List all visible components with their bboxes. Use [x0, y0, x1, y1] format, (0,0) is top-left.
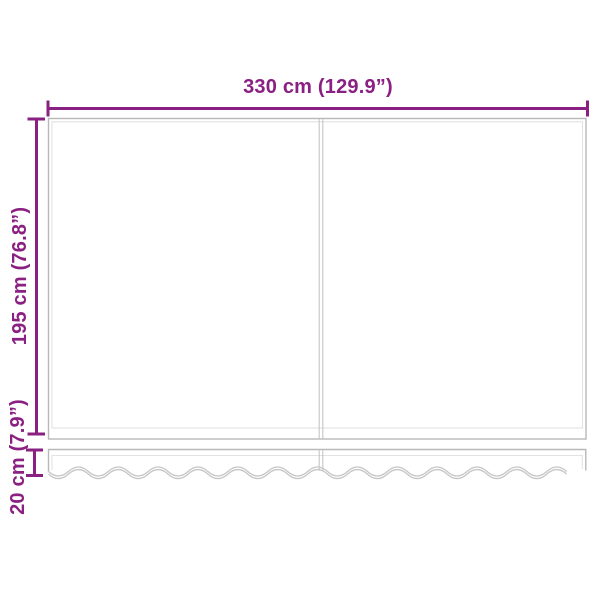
fabric-panel-outline [49, 119, 587, 440]
valance-outline [49, 450, 586, 472]
dimension-annotations [26, 101, 588, 476]
fabric-inner-hem-line [52, 122, 583, 428]
valance-inner-hem-line [52, 456, 582, 471]
awning-fabric-diagram: 330 cm (129.9”) 195 cm (76.8”) 20 cm (7.… [0, 0, 600, 600]
product-dimension-diagram: 330 cm (129.9”) 195 cm (76.8”) 20 cm (7.… [0, 0, 600, 600]
center-seams [319, 119, 323, 471]
height-dimension-label: 195 cm (76.8”) [9, 207, 31, 345]
valance-dimension-label: 20 cm (7.9”) [7, 399, 29, 515]
width-dimension-label: 330 cm (129.9”) [243, 76, 393, 98]
valance-scalloped-edge [49, 467, 567, 479]
hem-lines [52, 122, 583, 470]
fabric-panel [49, 119, 587, 472]
